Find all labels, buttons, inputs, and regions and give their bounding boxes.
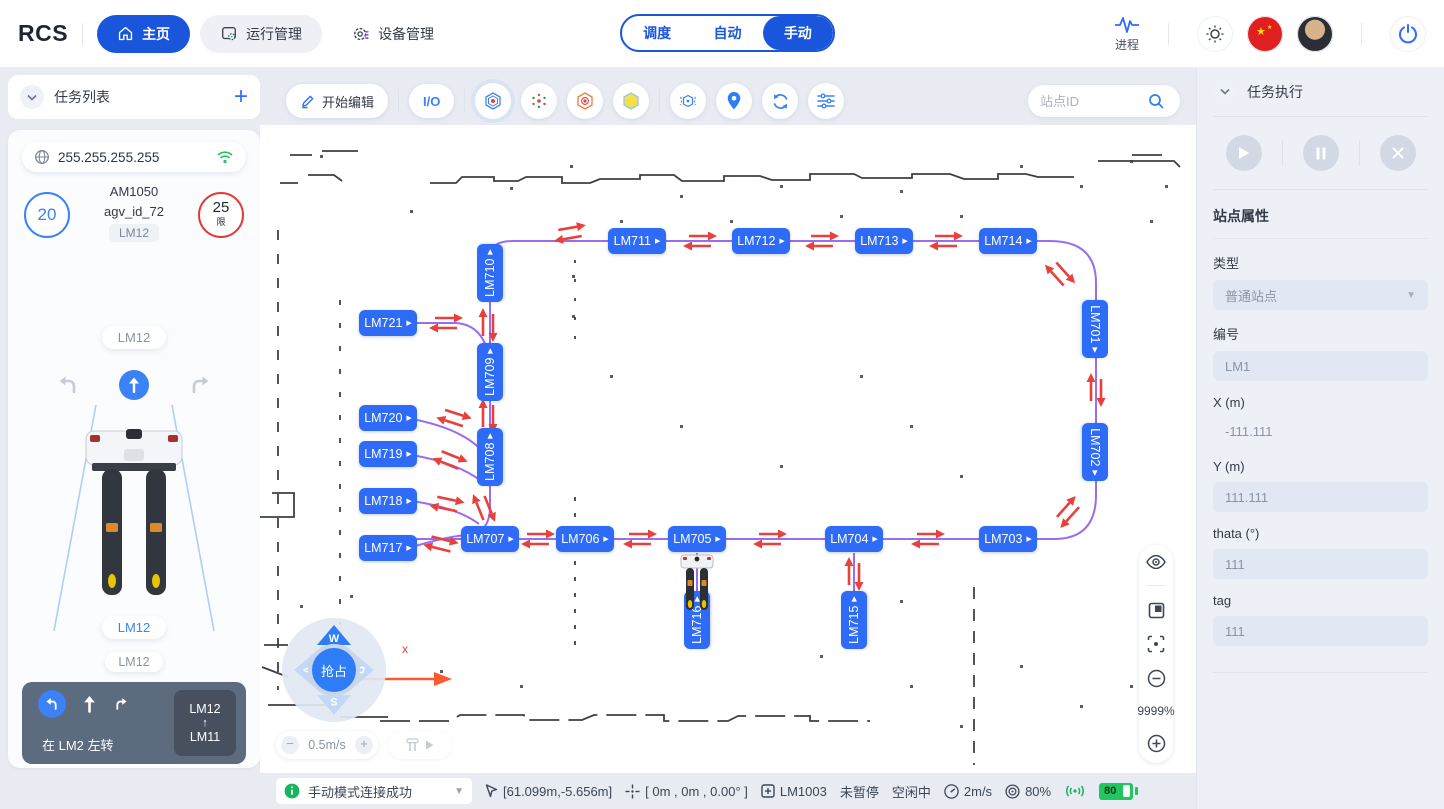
play-button[interactable] (1226, 135, 1262, 171)
type-select[interactable]: 普通站点 ▼ (1213, 280, 1428, 310)
station-pill: LM12 (102, 326, 167, 349)
station-LM705[interactable]: LM705▶ (668, 526, 726, 552)
start-edit-label: 开始编辑 (322, 92, 374, 111)
sliders-icon (817, 93, 835, 109)
divider (1282, 140, 1283, 166)
station-label: LM719 (364, 447, 402, 461)
nav-arrow: ↑ (202, 717, 208, 729)
task-execution-panel: 任务执行 站点属性 类型 普通站点 ▼ 编号 (1196, 67, 1444, 809)
number-input[interactable] (1213, 351, 1428, 381)
station-LM702[interactable]: LM702▶ (1082, 423, 1108, 481)
layer-station-button[interactable] (475, 83, 511, 119)
zoom-in-icon[interactable] (1147, 734, 1166, 753)
process-button[interactable]: 进程 (1114, 15, 1140, 53)
home-icon (117, 25, 134, 42)
thata-input[interactable] (1213, 549, 1428, 579)
station-label: LM710 (483, 259, 497, 297)
map-view-tools: 9999% (1139, 545, 1173, 763)
language-flag-button[interactable]: ★ ★ (1247, 16, 1283, 52)
fork-icon (406, 738, 419, 752)
joystick-down[interactable]: S (317, 695, 351, 715)
chevron-down-icon (27, 94, 37, 101)
field-tag-label: tag (1213, 593, 1428, 608)
station-direction-icon: ▶ (508, 536, 513, 543)
station-label: LM707 (466, 532, 504, 546)
layer-signal-button[interactable] (670, 83, 706, 119)
station-direction-icon: ▶ (1092, 470, 1099, 475)
divider (659, 89, 660, 113)
current-station: LM1003 (761, 784, 827, 799)
field-x-label: X (m) (1213, 395, 1428, 410)
progress-status: 80% (1005, 784, 1051, 799)
station-direction-icon: ▶ (487, 348, 494, 353)
plus-square-icon (761, 784, 775, 798)
station-search-input[interactable] (1040, 94, 1140, 109)
process-label: 进程 (1115, 36, 1139, 53)
theme-toggle-button[interactable] (1197, 16, 1233, 52)
vehicle-station-tag: LM12 (109, 224, 159, 242)
add-task-button[interactable]: + (234, 87, 248, 107)
forklift-graphic (8, 405, 260, 635)
map-robot[interactable] (679, 553, 715, 615)
vehicle-ip-row[interactable]: 255.255.255.255 (22, 142, 246, 172)
station-label: LM709 (483, 358, 497, 396)
search-icon[interactable] (1148, 93, 1164, 109)
nav-to: LM11 (190, 730, 220, 744)
axis-x-label: x (402, 642, 408, 656)
layer-target-button[interactable] (567, 83, 603, 119)
station-direction-icon: ▶ (406, 545, 411, 552)
station-label: LM717 (364, 541, 402, 555)
io-button[interactable]: I/O (409, 84, 454, 118)
app-logo: RCS (18, 20, 68, 47)
station-direction-icon: ▶ (603, 536, 608, 543)
station-label: LM702 (1088, 428, 1102, 466)
station-label: LM714 (984, 234, 1022, 248)
battery-nub (1135, 787, 1138, 795)
gear-icon (352, 25, 370, 43)
field-x: X (m) -111.111 (1213, 395, 1428, 445)
monitor-gear-icon (220, 25, 238, 43)
task-list-header: 任务列表 + (8, 75, 260, 119)
front-station-row: LM12 (8, 616, 260, 639)
nav-item-label: 主页 (142, 24, 170, 44)
sun-icon (1205, 24, 1225, 44)
mode-switch: 调度 自动 手动 (620, 14, 835, 52)
station-LM706[interactable]: LM706▶ (556, 526, 614, 552)
front-station-pill: LM12 (102, 616, 167, 639)
station-direction-icon: ▶ (406, 415, 411, 422)
navigation-left: 在 LM2 左转 (32, 690, 174, 756)
station-LM704[interactable]: LM704▶ (825, 526, 883, 552)
station-direction-icon: ▶ (655, 238, 660, 245)
speed-status: 2m/s (944, 784, 992, 799)
work-state: 空闲中 (892, 782, 931, 801)
joystick: W A D S 抢占 (282, 618, 386, 722)
navbar-right: 进程 ★ ★ (1114, 15, 1426, 53)
station-direction-icon: ▶ (406, 451, 411, 458)
task-execution-title: 任务执行 (1247, 82, 1303, 102)
speed-value: 0.5m/s (308, 738, 346, 752)
station-label: LM715 (847, 606, 861, 644)
mode-tab-auto[interactable]: 自动 (692, 16, 762, 50)
navbar: RCS 主页 运行管理 设备管理 调度 自动 手动 (0, 0, 1444, 67)
mode-tab-dispatch[interactable]: 调度 (622, 16, 692, 50)
station-label: LM705 (673, 532, 711, 546)
station-props-title: 站点属性 (1213, 190, 1428, 239)
progress-status-value: 80% (1025, 784, 1051, 799)
collapse-button[interactable] (1213, 80, 1237, 104)
divider (1147, 585, 1165, 586)
turn-left-active-icon (38, 690, 66, 718)
station-label: LM704 (830, 532, 868, 546)
station-search (1028, 85, 1180, 117)
minimap-icon[interactable] (1148, 602, 1165, 619)
station-direction-icon: ▶ (1026, 536, 1031, 543)
divider (1359, 140, 1360, 166)
yellow-hexagon-icon (621, 91, 641, 111)
turn-right-icon[interactable] (187, 372, 213, 398)
nav-instruction: 在 LM2 左转 (32, 735, 174, 756)
fork-action-button[interactable] (388, 731, 452, 759)
power-button[interactable] (1390, 16, 1426, 52)
divider (1213, 672, 1428, 673)
speed-gauge: 20 (24, 192, 70, 238)
pause-button[interactable] (1303, 135, 1339, 171)
station-direction-icon: ▶ (851, 596, 858, 601)
battery-indicator: 80 (1099, 783, 1133, 800)
status-message-select[interactable]: 手动模式连接成功 ▼ (276, 778, 472, 804)
station-label: LM703 (984, 532, 1022, 546)
app-window: RCS 主页 运行管理 设备管理 调度 自动 手动 (0, 0, 1444, 809)
station-direction-icon: ▶ (406, 320, 411, 327)
globe-icon (34, 149, 50, 165)
field-y-label: Y (m) (1213, 459, 1428, 474)
task-list-panel: 任务列表 + 255.255.255.255 20 AM1050 agv_id_… (8, 75, 260, 768)
scatter-dots-icon (529, 91, 549, 111)
field-type-label: 类型 (1213, 253, 1428, 272)
divider (82, 23, 83, 45)
station-label: LM708 (483, 443, 497, 481)
divider (1361, 23, 1362, 45)
chevron-down-icon (1220, 88, 1230, 95)
mode-tab-manual[interactable]: 手动 (763, 16, 833, 50)
vehicle-ip: 255.255.255.255 (58, 150, 159, 165)
cursor-position-value: [61.099m,-5.656m] (503, 784, 612, 799)
chevron-down-icon: ▼ (1406, 290, 1416, 301)
vehicle-agv-id: agv_id_72 (104, 204, 164, 219)
current-station-value: LM1003 (780, 784, 827, 799)
wifi-icon (216, 150, 234, 164)
nav-item-device[interactable]: 设备管理 (332, 15, 454, 53)
playback-controls (1213, 117, 1428, 187)
battery-segment (1123, 785, 1130, 797)
cancel-button[interactable] (1380, 135, 1416, 171)
station-LM720[interactable]: LM720▶ (359, 405, 417, 431)
vehicle-identity: AM1050 agv_id_72 LM12 (104, 184, 164, 242)
statusbar: 手动模式连接成功 ▼ [61.099m,-5.656m] [ 0m , 0m ,… (260, 773, 1196, 809)
pause-icon (1316, 147, 1326, 160)
play-small-icon (425, 740, 434, 750)
locate-pin-button[interactable] (716, 83, 752, 119)
station-LM708[interactable]: LM708▶ (477, 428, 503, 486)
station-direction-icon: ▶ (779, 238, 784, 245)
station-LM712[interactable]: LM712▶ (732, 228, 790, 254)
station-LM709[interactable]: LM709▶ (477, 343, 503, 401)
io-label: I/O (423, 94, 440, 109)
station-direction-icon: ▶ (406, 498, 411, 505)
go-straight-icon[interactable] (119, 370, 149, 400)
station-label: LM720 (364, 411, 402, 425)
layer-area-button[interactable] (613, 83, 649, 119)
front-station-row-2: LM12 (8, 652, 260, 672)
waveform-icon (1114, 15, 1140, 35)
front-station-pill-2: LM12 (105, 652, 162, 672)
center-focus-icon[interactable] (1147, 635, 1165, 653)
limit-value: 25 (213, 201, 230, 215)
station-label: LM713 (860, 234, 898, 248)
station-LM721[interactable]: LM721▶ (359, 310, 417, 336)
station-direction-icon: ▶ (1092, 347, 1099, 352)
divider (464, 89, 465, 113)
speed-limit-gauge: 25 限 (198, 192, 244, 238)
hexagon-signal-icon (678, 91, 698, 111)
status-message: 手动模式连接成功 (308, 782, 412, 801)
station-direction-icon: ▶ (715, 536, 720, 543)
station-direction-icon: ▶ (487, 433, 494, 438)
robot-pose-value: [ 0m , 0m , 0.00° ] (645, 784, 748, 799)
refresh-button[interactable] (762, 83, 798, 119)
station-LM715[interactable]: LM715▶ (841, 591, 867, 649)
station-label: LM718 (364, 494, 402, 508)
refresh-icon (771, 92, 790, 111)
power-icon (1397, 23, 1419, 45)
station-label: LM721 (364, 316, 402, 330)
play-icon (1237, 146, 1250, 160)
layer-points-button[interactable] (521, 83, 557, 119)
field-number: 编号 (1213, 324, 1428, 381)
pencil-icon (300, 94, 315, 109)
station-LM703[interactable]: LM703▶ (979, 526, 1037, 552)
speedometer-icon (944, 784, 959, 799)
info-icon (284, 783, 300, 799)
field-thata-label: thata (°) (1213, 526, 1428, 541)
vehicle-gauges: 20 AM1050 agv_id_72 LM12 25 限 (8, 184, 260, 242)
station-LM713[interactable]: LM713▶ (855, 228, 913, 254)
map-canvas[interactable]: LM711▶LM712▶LM713▶LM714▶LM710▶LM721▶LM70… (260, 125, 1196, 773)
x-value: -111.111 (1213, 418, 1428, 445)
navigation-panel: 在 LM2 左转 LM12 ↑ LM11 (22, 682, 246, 764)
station-label: LM711 (614, 234, 651, 248)
field-number-label: 编号 (1213, 324, 1428, 343)
task-list-title: 任务列表 (54, 87, 110, 107)
user-avatar[interactable] (1297, 16, 1333, 52)
turn-left-icon[interactable] (55, 372, 81, 398)
speed-status-value: 2m/s (964, 784, 992, 799)
flag-star-icon: ★ (1256, 25, 1266, 38)
filter-settings-button[interactable] (808, 83, 844, 119)
signal-icon (1064, 783, 1086, 799)
field-y: Y (m) (1213, 459, 1428, 512)
target-icon (1005, 784, 1020, 799)
cursor-icon (485, 784, 498, 798)
station-LM711[interactable]: LM711▶ (608, 228, 666, 254)
speed-minus-button[interactable]: − (281, 736, 299, 754)
type-select-value: 普通站点 (1225, 286, 1277, 305)
station-LM714[interactable]: LM714▶ (979, 228, 1037, 254)
station-label: LM701 (1088, 305, 1102, 343)
nav-segment-box: LM12 ↑ LM11 (174, 690, 236, 756)
nav-from: LM12 (189, 702, 220, 716)
direction-indicators (8, 370, 260, 400)
station-direction-icon: ▶ (487, 249, 494, 254)
nav-item-operation[interactable]: 运行管理 (200, 15, 322, 53)
y-input[interactable] (1213, 482, 1428, 512)
task-execution-header: 任务执行 (1213, 67, 1428, 117)
turn-right-white-icon (113, 696, 129, 712)
tag-input[interactable] (1213, 616, 1428, 646)
field-type: 类型 普通站点 ▼ (1213, 253, 1428, 310)
cursor-position: [61.099m,-5.656m] (485, 784, 612, 799)
vehicle-card[interactable]: 255.255.255.255 20 AM1050 agv_id_72 LM12… (8, 130, 260, 768)
station-direction-icon: ▶ (872, 536, 877, 543)
map-pin-icon (726, 91, 742, 111)
straight-icon (82, 695, 97, 713)
seize-button[interactable]: 抢占 (308, 644, 360, 696)
pause-state: 未暂停 (840, 782, 879, 801)
robot-pose: [ 0m , 0m , 0.00° ] (625, 784, 748, 799)
station-LM710[interactable]: LM710▶ (477, 244, 503, 302)
station-LM719[interactable]: LM719▶ (359, 441, 417, 467)
collapse-button[interactable] (20, 85, 44, 109)
eye-icon[interactable] (1146, 555, 1166, 569)
hexagon-target-icon (575, 91, 595, 111)
nav-item-label: 运行管理 (246, 24, 302, 44)
station-LM701[interactable]: LM701▶ (1082, 300, 1108, 358)
zoom-out-icon[interactable] (1147, 669, 1166, 688)
station-pill-row: LM12 (8, 326, 260, 349)
divider (1168, 23, 1169, 45)
divider (398, 89, 399, 113)
station-LM707[interactable]: LM707▶ (461, 526, 519, 552)
joystick-up[interactable]: W (317, 625, 351, 645)
speed-control: − 0.5m/s + (276, 731, 378, 759)
map-toolbar: 开始编辑 I/O (286, 83, 1180, 119)
battery-value: 80 (1104, 785, 1116, 797)
field-tag: tag (1213, 593, 1428, 646)
close-icon (1392, 147, 1404, 159)
nav-item-label: 设备管理 (378, 24, 434, 44)
station-LM718[interactable]: LM718▶ (359, 488, 417, 514)
crosshair-icon (625, 784, 640, 799)
station-LM717[interactable]: LM717▶ (359, 535, 417, 561)
station-label: LM706 (561, 532, 599, 546)
map-region: 开始编辑 I/O (260, 67, 1196, 809)
field-thata: thata (°) (1213, 526, 1428, 579)
station-direction-icon: ▶ (902, 238, 907, 245)
station-direction-icon: ▶ (1026, 238, 1031, 245)
station-label: LM712 (737, 234, 775, 248)
speed-value: 20 (38, 205, 57, 225)
flag-star-icon: ★ (1267, 24, 1272, 31)
vehicle-model: AM1050 (110, 184, 158, 199)
hexagon-rings-icon (483, 91, 503, 111)
limit-tag: 限 (216, 215, 225, 229)
speed-plus-button[interactable]: + (355, 736, 373, 754)
maneuver-icons (32, 690, 174, 718)
nav-item-home[interactable]: 主页 (97, 15, 190, 53)
start-edit-button[interactable]: 开始编辑 (286, 84, 388, 118)
chevron-down-icon: ▼ (454, 786, 464, 797)
zoom-level: 9999% (1137, 704, 1174, 718)
